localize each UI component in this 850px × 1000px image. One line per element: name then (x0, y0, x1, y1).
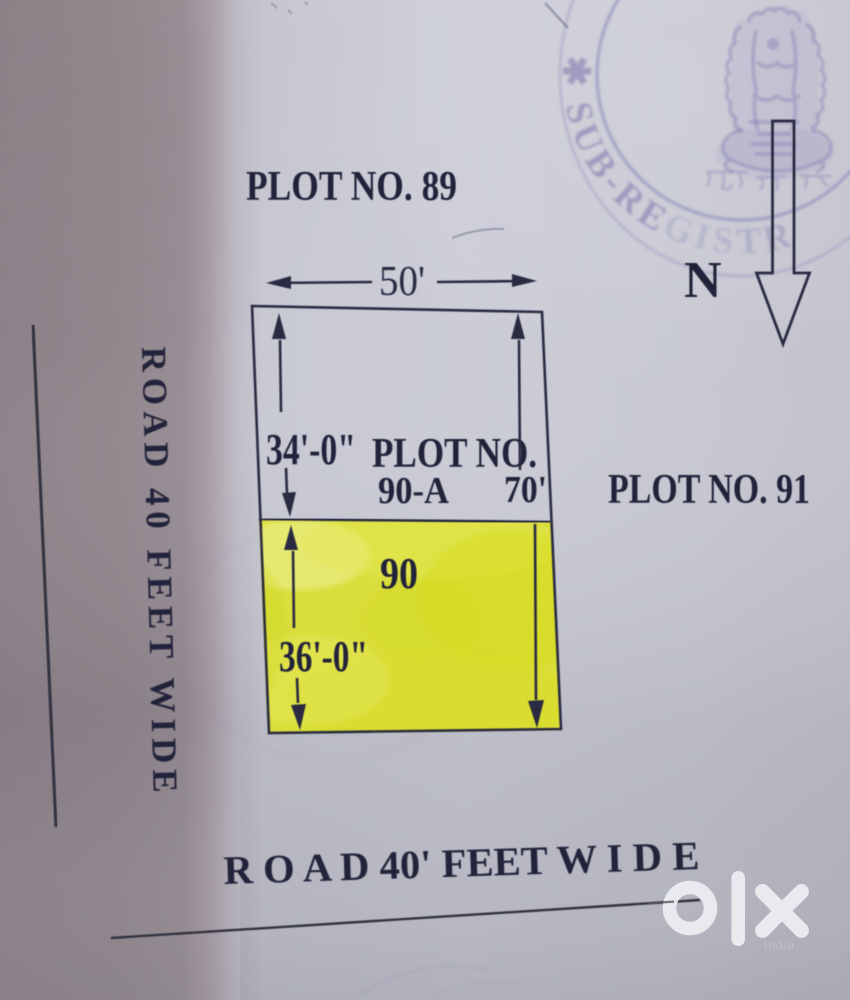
svg-text:PLOT NO. 89: PLOT NO. 89 (246, 164, 457, 210)
svg-text:PLOT NO. 91: PLOT NO. 91 (608, 467, 810, 513)
svg-text:36'-0": 36'-0" (279, 632, 368, 681)
svg-text:India: India (764, 938, 795, 952)
svg-text:90-A: 90-A (378, 470, 449, 512)
svg-text:90: 90 (380, 549, 418, 598)
svg-text:70': 70' (504, 469, 547, 511)
svg-text:50': 50' (379, 259, 425, 305)
svg-text:34'-0": 34'-0" (266, 425, 356, 474)
svg-text:N: N (684, 252, 722, 309)
